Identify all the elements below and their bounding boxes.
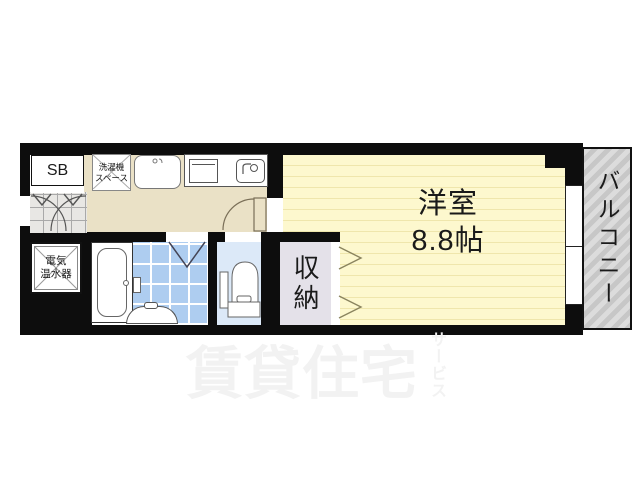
balcony-label: バルコニー xyxy=(590,169,624,309)
watermark-subtext: サービス xyxy=(424,331,448,403)
bathroom-folding-door-icon xyxy=(166,240,208,270)
bathroom-door-handle xyxy=(133,277,141,293)
room-door-swing-icon xyxy=(220,195,270,235)
balcony: バルコニー xyxy=(582,147,632,330)
shoe-box: SB xyxy=(31,155,84,186)
entrance-door-opening xyxy=(20,196,30,226)
wall-right-upper xyxy=(565,143,583,187)
entrance-tile-floor xyxy=(30,192,87,233)
bathtub xyxy=(91,242,133,323)
water-heater-box: 電気 温水器 xyxy=(30,242,82,294)
wall-right-lower xyxy=(565,303,583,335)
main-room-name: 洋室 xyxy=(418,186,478,223)
wall-kitchen-room xyxy=(267,143,283,198)
watermark-text: 賃貸住宅 xyxy=(186,328,418,410)
wall-bath-toilet xyxy=(208,232,217,325)
toilet-icon xyxy=(217,242,261,325)
bathtub-drain-icon xyxy=(123,280,129,286)
entrance-door-arcs-icon xyxy=(30,192,87,233)
bathroom-counter-faucet xyxy=(144,302,158,309)
washbasin-faucet-icon xyxy=(151,157,165,169)
balcony-window-divider xyxy=(566,246,582,247)
kitchen-counter xyxy=(184,154,268,187)
main-room-size: 8.8帖 xyxy=(411,223,484,260)
closet-folding-doors-icon xyxy=(338,245,364,320)
shoe-box-counter xyxy=(31,186,84,193)
water-heater-label-2: 温水器 xyxy=(40,268,72,281)
balcony-window xyxy=(565,185,583,305)
water-heater-inner-frame: 電気 温水器 xyxy=(34,246,78,290)
wall-toilet-closet xyxy=(261,232,280,325)
storage-label: 収納 xyxy=(287,254,324,314)
water-heater-label-1: 電気 xyxy=(46,255,67,268)
washbasin xyxy=(134,155,181,189)
shoe-box-label: SB xyxy=(47,162,68,180)
kitchen-sink xyxy=(236,159,265,183)
floor-plan: SB 洗濯機 スペース xyxy=(0,0,640,480)
stove xyxy=(189,159,218,183)
stove-grill-line xyxy=(192,164,215,165)
main-room-label: 洋室 8.8帖 xyxy=(378,184,518,262)
washer-space-label-2: スペース xyxy=(95,173,128,183)
washer-space-box: 洗濯機 スペース xyxy=(92,154,131,191)
storage-closet: 収納 xyxy=(280,242,331,325)
washer-space-label-1: 洗濯機 xyxy=(99,162,125,172)
kitchen-faucet-icon xyxy=(240,162,260,178)
